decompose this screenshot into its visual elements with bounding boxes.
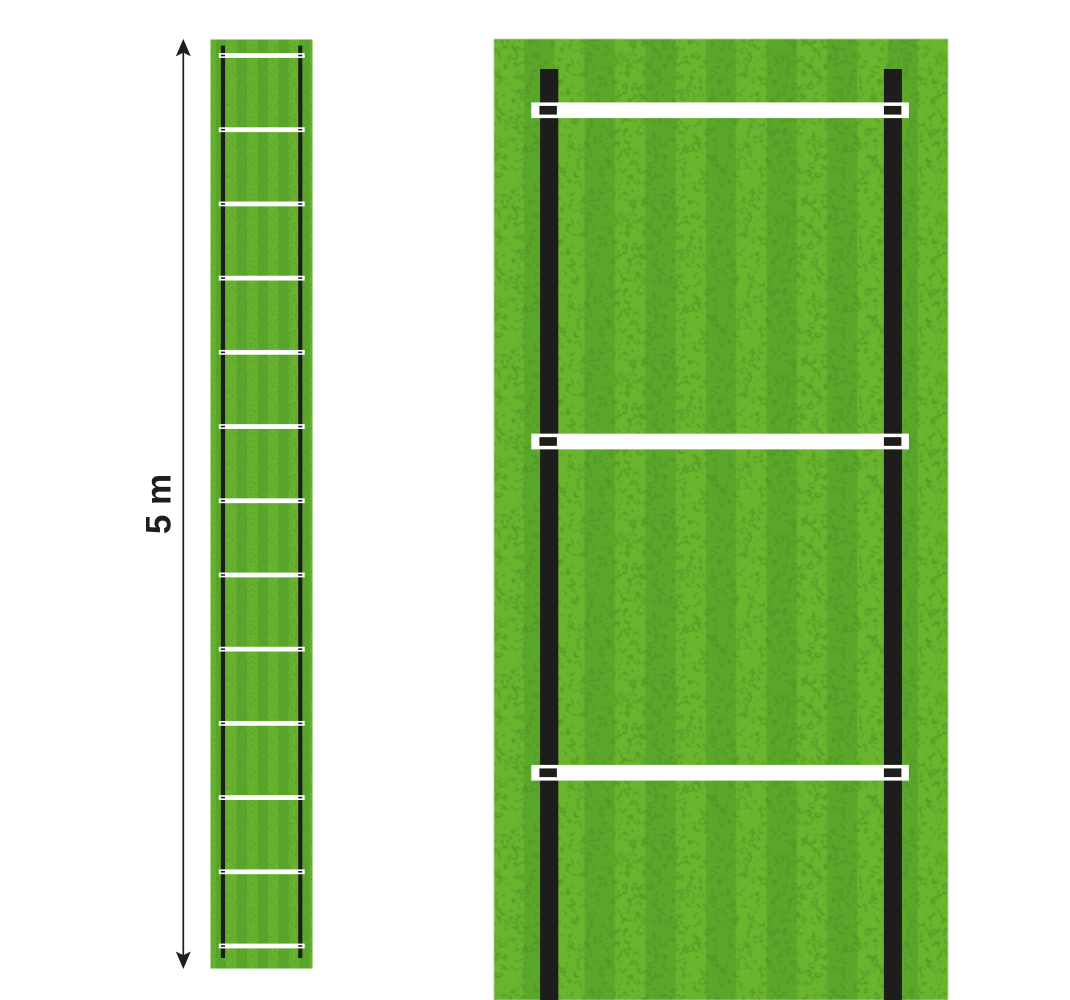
svg-text:5 m: 5 m [140, 474, 179, 534]
